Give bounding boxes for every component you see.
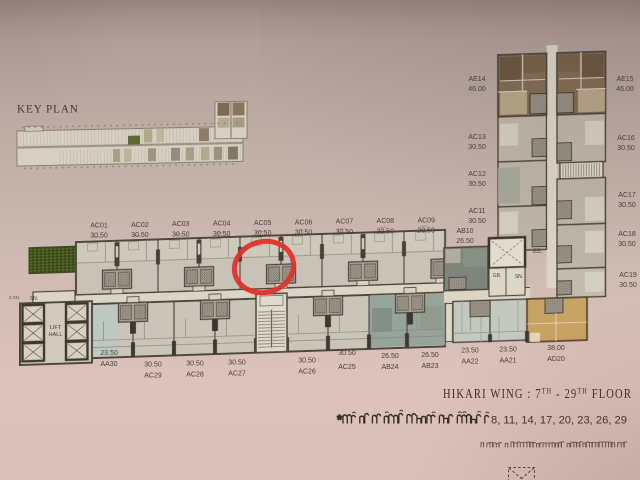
svg-text:AC29: AC29: [144, 373, 162, 380]
svg-text:AC28: AC28: [186, 372, 204, 379]
svg-text:23.50: 23.50: [100, 350, 118, 357]
svg-text:AC26: AC26: [298, 369, 316, 376]
svg-text:30.50: 30.50: [338, 350, 356, 357]
svg-text:30.50: 30.50: [186, 361, 204, 368]
svg-text:*: *: [337, 412, 342, 427]
svg-text:AC25: AC25: [338, 364, 356, 371]
svg-text:AC27: AC27: [228, 371, 246, 378]
svg-text:30.50: 30.50: [298, 358, 316, 365]
svg-text:AA30: AA30: [100, 361, 117, 368]
svg-text:30.50: 30.50: [228, 360, 246, 367]
svg-text:30.50: 30.50: [144, 362, 162, 369]
svg-text:HALL: HALL: [49, 332, 63, 338]
